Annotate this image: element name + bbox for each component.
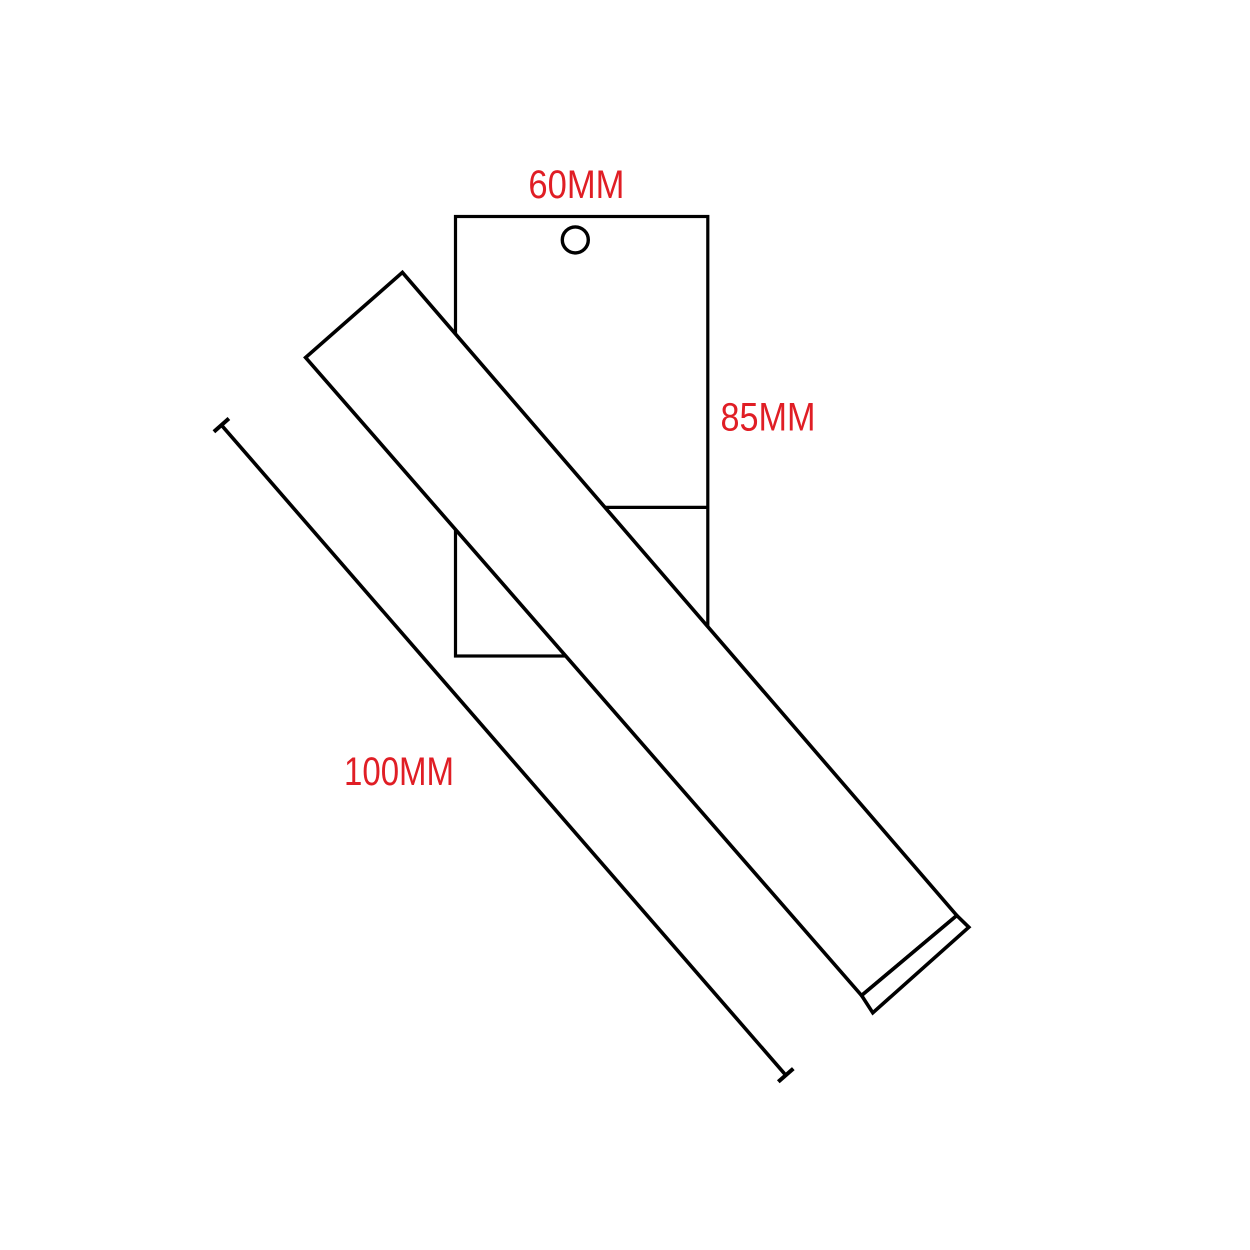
svg-text:85MM: 85MM [721,396,816,440]
svg-text:100MM: 100MM [344,750,454,794]
svg-text:60MM: 60MM [528,163,624,207]
